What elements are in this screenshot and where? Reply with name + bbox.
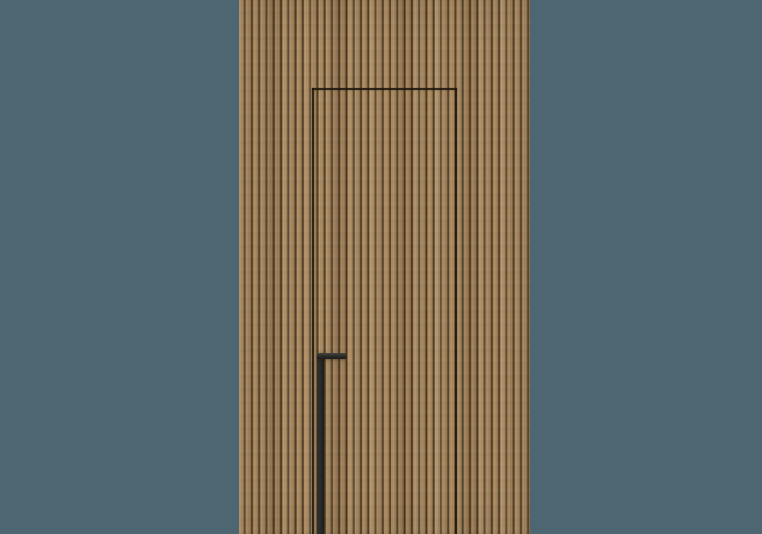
door-handle-vertical-bar [317,353,324,534]
scene-background [0,0,762,534]
door-outline-left [312,88,314,534]
door-handle-horizontal-bar [317,353,346,359]
door-outline-right [455,88,457,534]
wood-slat-panel [239,0,530,534]
door-outline-top [312,88,457,90]
